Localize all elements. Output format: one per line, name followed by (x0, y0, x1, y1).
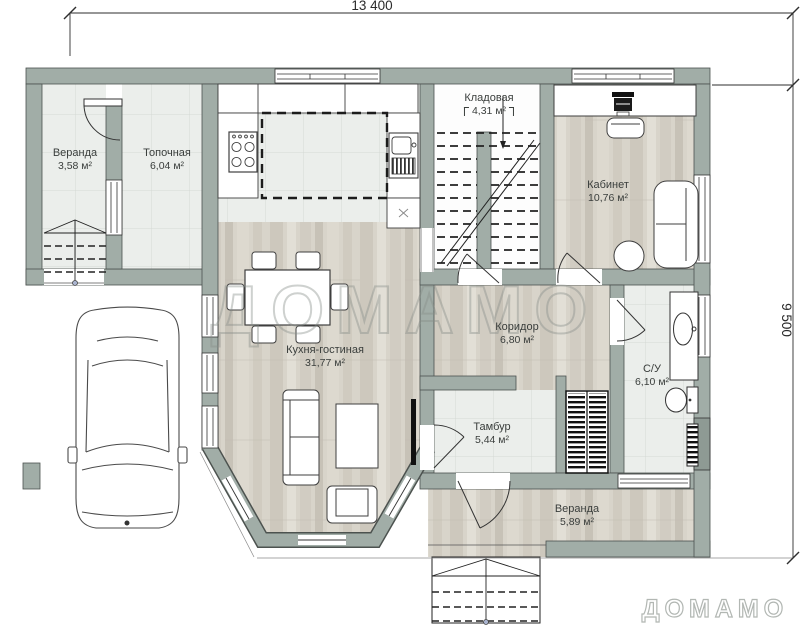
wall-stair-right (540, 84, 554, 269)
vanity-sink (670, 292, 698, 380)
room-name: Кухня-гостиная (286, 344, 364, 356)
window-veranda-top (618, 474, 690, 488)
wall-stair-spine (477, 132, 491, 269)
wall-wing-left (26, 84, 42, 285)
bracket-decoration (464, 107, 469, 116)
coffee-table (336, 404, 378, 468)
room-area: 10,76 м² (587, 192, 629, 205)
desk-chair (607, 118, 644, 138)
kitchen-counter-top (218, 84, 418, 113)
window-partition (106, 180, 122, 235)
room-name: Топочная (143, 147, 191, 159)
bracket-decoration (509, 107, 514, 116)
room-area: 4,31 м² (461, 105, 517, 118)
window-living-left-3 (202, 406, 218, 448)
floor-veranda-tl (42, 84, 106, 285)
dining-chair (252, 252, 276, 269)
window-kabinet-top (572, 69, 674, 83)
car-mirror (68, 447, 77, 463)
room-area: 3,58 м² (53, 160, 97, 173)
window-kitchen-top (275, 69, 380, 83)
room-area-value: 4,31 м² (472, 105, 506, 117)
kitchen-sink (389, 133, 418, 178)
room-label-su: С/У 6,10 м² (635, 363, 669, 389)
round-table (614, 241, 644, 271)
brand-logo: ДОМАМО (642, 595, 788, 623)
car-mirror (178, 447, 187, 463)
towel-radiator (687, 424, 698, 466)
car (68, 307, 187, 528)
room-name: Кабинет (587, 179, 629, 191)
room-name: Кладовая (464, 92, 513, 104)
room-name: Коридор (495, 321, 538, 333)
exterior-pillar (23, 463, 40, 489)
tv (411, 399, 416, 465)
wall-corridor-bottom (420, 376, 516, 390)
office-sofa (654, 181, 698, 268)
floor-topochnaya (122, 84, 202, 285)
room-label-kladovaya: Кладовая 4,31 м² (461, 92, 517, 118)
dimension-width-text: 13 400 (351, 0, 392, 13)
entrance-stairs (432, 557, 540, 625)
sofa (283, 390, 319, 485)
room-label-kabinet: Кабинет 10,76 м² (587, 179, 629, 205)
room-label-kitchen-living: Кухня-гостиная 31,77 м² (286, 344, 364, 370)
armchair (327, 486, 377, 523)
window-living-left-2 (202, 353, 218, 393)
room-label-veranda-bottom: Веранда 5,89 м² (555, 503, 599, 529)
room-label-tambur: Тамбур 5,44 м² (473, 421, 510, 447)
stove (229, 132, 257, 172)
dimension-height-text: 9 500 (779, 303, 794, 337)
watermark: ДОМАМО (211, 272, 600, 348)
room-name: Веранда (555, 503, 599, 515)
room-name: Тамбур (473, 421, 510, 433)
room-area: 6,80 м² (495, 334, 538, 347)
room-label-koridor: Коридор 6,80 м² (495, 321, 538, 347)
wall-niche-left (556, 376, 566, 473)
room-label-topochnaya: Топочная 6,04 м² (143, 147, 191, 173)
dining-chair (296, 252, 320, 269)
floor-plan: 13 400 9 500 ДОМАМО ДОМАМО Веранда 3,58 … (0, 0, 800, 629)
toilet (666, 387, 699, 413)
room-area: 6,04 м² (143, 160, 191, 173)
room-label-veranda-tl: Веранда 3,58 м² (53, 147, 97, 173)
room-area: 31,77 м² (286, 357, 364, 370)
room-area: 5,89 м² (555, 516, 599, 529)
wall-veranda-bottom (546, 541, 710, 557)
wardrobe (566, 391, 608, 473)
floor-plan-drawing: 13 400 9 500 ДОМАМО ДОМАМО (0, 0, 800, 629)
room-name: С/У (643, 363, 661, 375)
wall-living-left (202, 84, 218, 450)
room-name: Веранда (53, 147, 97, 159)
room-area: 6,10 м² (635, 376, 669, 389)
room-area: 5,44 м² (473, 434, 510, 447)
